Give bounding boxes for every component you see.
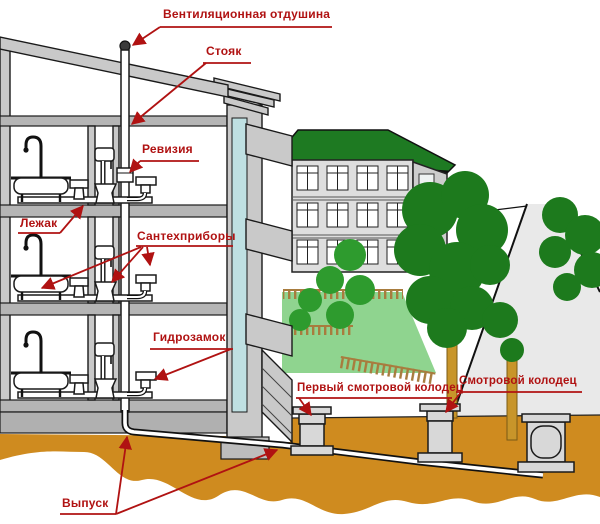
label-outlet: Выпуск	[62, 496, 108, 510]
left-wall	[0, 48, 10, 412]
label-ventilation-outlet: Вентиляционная отдушина	[163, 7, 330, 21]
tree-trunk	[507, 360, 517, 440]
riser-pipe	[121, 50, 129, 412]
collector-well	[518, 414, 574, 472]
floor-slab	[0, 400, 227, 412]
floor-slab	[0, 303, 227, 315]
basement	[0, 412, 227, 433]
label-water-seal: Гидрозамок	[153, 330, 226, 344]
label-revision: Ревизия	[142, 142, 193, 156]
diagram-canvas	[0, 0, 600, 524]
label-riser: Стояк	[206, 44, 242, 58]
label-first-inspection-well: Первый смотровой колодец	[297, 382, 463, 394]
stairwell-window-strip	[232, 118, 247, 412]
label-inspection-well: Смотровой колодец	[459, 375, 577, 387]
sewerage-scheme-diagram: Вентиляционная отдушина Стояк Ревизия Ле…	[0, 0, 600, 524]
label-bed-pipe: Лежак	[20, 216, 57, 230]
label-sanitary-fixtures: Сантехприборы	[137, 229, 236, 243]
